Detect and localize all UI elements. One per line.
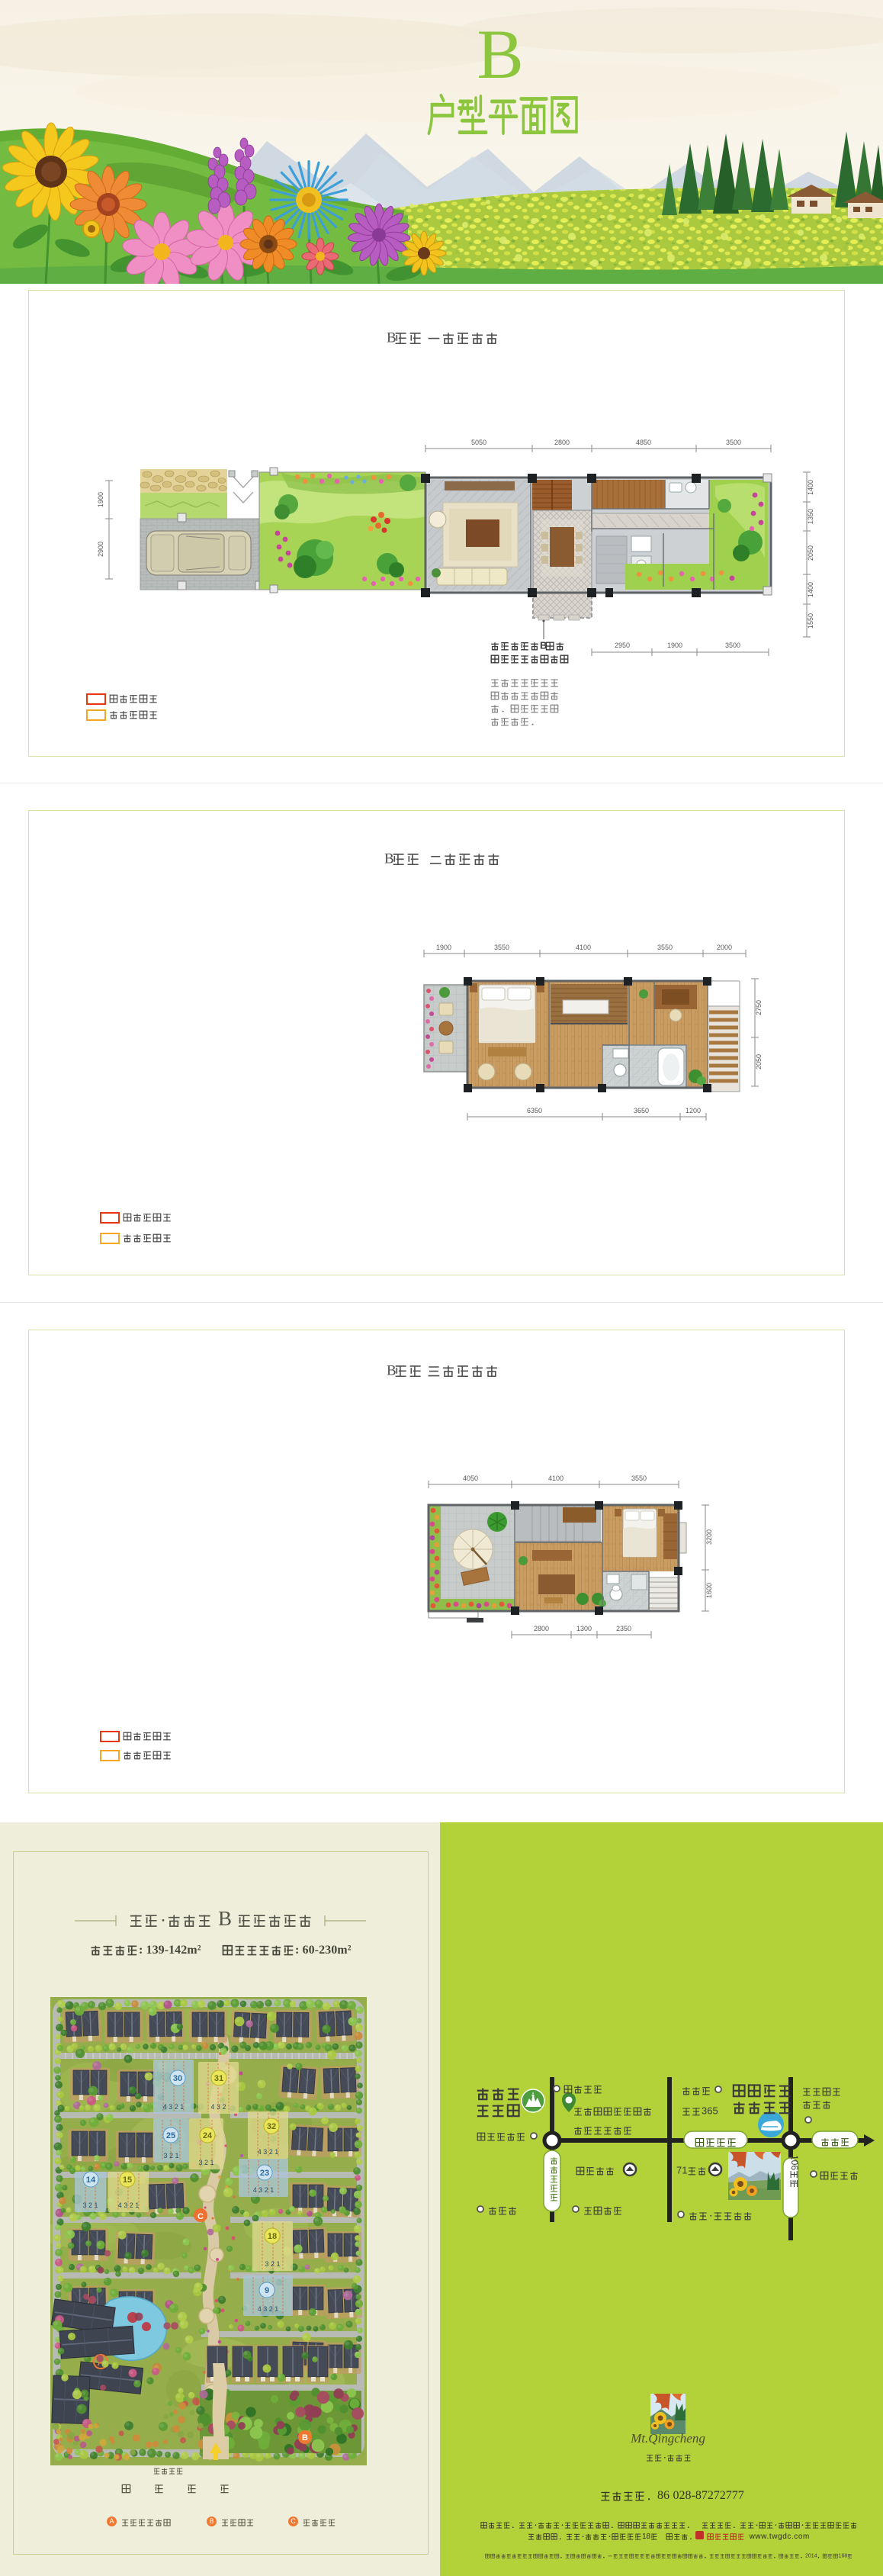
svg-text:6350: 6350 bbox=[527, 1107, 542, 1114]
svg-text:3550: 3550 bbox=[631, 1475, 647, 1482]
svg-text:2050: 2050 bbox=[755, 1054, 763, 1069]
svg-text:3500: 3500 bbox=[726, 439, 741, 446]
svg-text:4 3 2 1: 4 3 2 1 bbox=[258, 2148, 279, 2156]
svg-text:365: 365 bbox=[702, 2105, 718, 2117]
svg-text:3650: 3650 bbox=[634, 1107, 649, 1114]
svg-text:3550: 3550 bbox=[657, 944, 673, 951]
svg-text:www.twgdc.com: www.twgdc.com bbox=[749, 2533, 810, 2541]
svg-text:C: C bbox=[197, 2212, 204, 2221]
svg-text:1350: 1350 bbox=[807, 509, 814, 524]
svg-text:2800: 2800 bbox=[554, 439, 570, 446]
svg-text:32: 32 bbox=[267, 2122, 276, 2131]
svg-text:24: 24 bbox=[203, 2131, 213, 2140]
svg-text:1900: 1900 bbox=[436, 944, 451, 951]
svg-text:3 2 1: 3 2 1 bbox=[198, 2159, 214, 2166]
svg-text:028-87272777: 028-87272777 bbox=[673, 2489, 744, 2502]
svg-text:2900: 2900 bbox=[97, 542, 104, 557]
svg-text:18: 18 bbox=[642, 2533, 651, 2541]
svg-text:31: 31 bbox=[214, 2074, 223, 2083]
svg-text:4850: 4850 bbox=[636, 439, 651, 446]
svg-text:60-230m²: 60-230m² bbox=[303, 1944, 352, 1957]
svg-text:106: 106 bbox=[789, 2155, 800, 2170]
svg-text:2000: 2000 bbox=[717, 944, 732, 951]
svg-text:23: 23 bbox=[260, 2169, 269, 2178]
svg-text:168: 168 bbox=[839, 2554, 848, 2559]
svg-text:1600: 1600 bbox=[705, 1583, 713, 1598]
svg-text:1900: 1900 bbox=[97, 492, 104, 507]
svg-text:B: B bbox=[387, 1363, 397, 1379]
svg-text:3 2 1: 3 2 1 bbox=[82, 2201, 98, 2209]
svg-text:B: B bbox=[387, 330, 397, 346]
svg-text:4050: 4050 bbox=[463, 1475, 478, 1482]
svg-text:4100: 4100 bbox=[576, 944, 591, 951]
svg-text:3550: 3550 bbox=[494, 944, 509, 951]
svg-text:1300: 1300 bbox=[576, 1625, 592, 1632]
svg-text:3200: 3200 bbox=[705, 1529, 713, 1545]
svg-text:1900: 1900 bbox=[667, 642, 682, 649]
svg-text:2050: 2050 bbox=[807, 545, 814, 561]
svg-text:5050: 5050 bbox=[471, 439, 486, 446]
svg-text:2950: 2950 bbox=[615, 642, 630, 649]
svg-text:71: 71 bbox=[676, 2165, 688, 2176]
svg-text:18: 18 bbox=[268, 2232, 277, 2241]
svg-text:30: 30 bbox=[173, 2074, 182, 2083]
svg-text:1200: 1200 bbox=[686, 1107, 701, 1114]
svg-text:B: B bbox=[384, 851, 394, 867]
svg-text:3 2 1: 3 2 1 bbox=[265, 2260, 280, 2268]
svg-text:1550: 1550 bbox=[807, 613, 814, 629]
svg-text:14: 14 bbox=[86, 2176, 96, 2185]
svg-text:9: 9 bbox=[265, 2286, 269, 2295]
svg-text:2800: 2800 bbox=[534, 1625, 549, 1632]
svg-text:3 2 1: 3 2 1 bbox=[163, 2152, 178, 2160]
svg-text:1400: 1400 bbox=[807, 582, 814, 597]
svg-text:4 3 2 1: 4 3 2 1 bbox=[253, 2186, 275, 2194]
svg-text:B: B bbox=[302, 2433, 308, 2443]
svg-text:3500: 3500 bbox=[725, 642, 740, 649]
svg-text:4 3 2 1: 4 3 2 1 bbox=[118, 2201, 140, 2209]
svg-text:86: 86 bbox=[657, 2489, 669, 2502]
svg-text:2350: 2350 bbox=[616, 1625, 631, 1632]
svg-text:25: 25 bbox=[166, 2131, 175, 2140]
svg-text:139-142m²: 139-142m² bbox=[146, 1944, 201, 1957]
svg-text:4 3 2: 4 3 2 bbox=[210, 2103, 226, 2111]
svg-text:4100: 4100 bbox=[548, 1475, 564, 1482]
svg-text:4 3 2 1: 4 3 2 1 bbox=[258, 2305, 279, 2313]
svg-text:1400: 1400 bbox=[807, 480, 814, 495]
svg-text:4 3 2 1: 4 3 2 1 bbox=[163, 2103, 185, 2111]
svg-text:2014: 2014 bbox=[805, 2554, 817, 2559]
svg-text:2750: 2750 bbox=[755, 1000, 763, 1015]
svg-text:15: 15 bbox=[123, 2176, 132, 2185]
